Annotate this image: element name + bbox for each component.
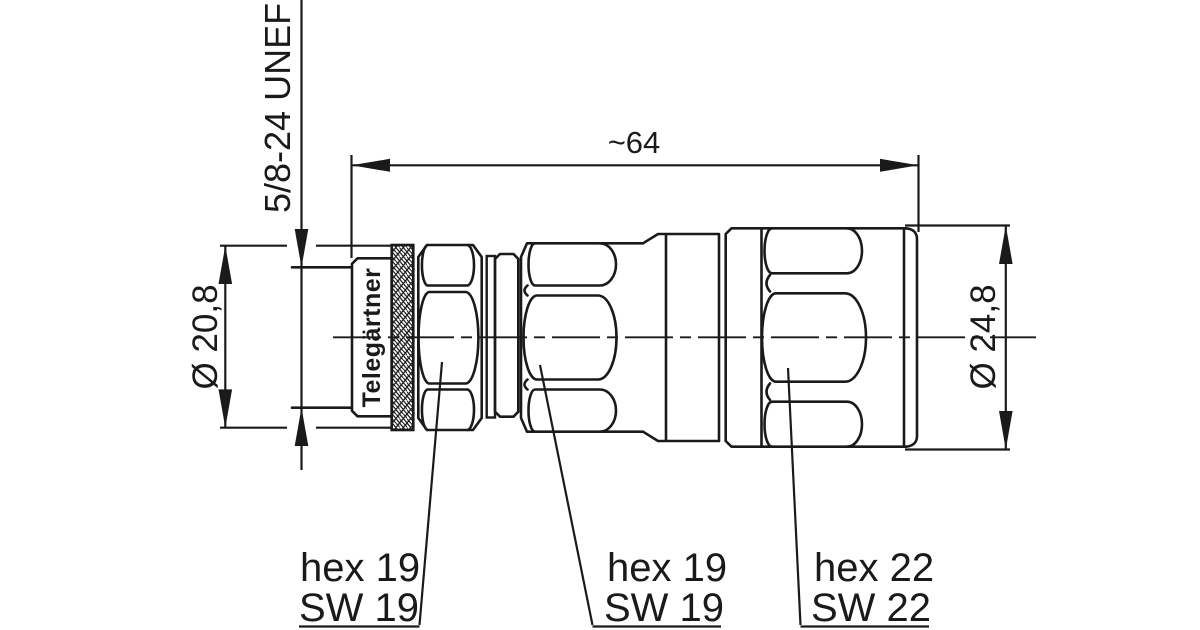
coupling-nut: Telegärtner bbox=[352, 258, 392, 416]
callout-line1: hex 19 bbox=[300, 546, 420, 590]
callout-line2: SW 22 bbox=[811, 586, 931, 630]
callout-line2: SW 19 bbox=[299, 586, 419, 630]
thread-spec-label: 5/8-24 UNEF bbox=[257, 3, 298, 213]
technical-drawing-page: Telegärtner bbox=[0, 0, 1200, 630]
connector-technical-drawing: Telegärtner bbox=[0, 0, 1200, 630]
background bbox=[0, 0, 1200, 630]
brand-label: Telegärtner bbox=[358, 268, 386, 408]
callout-line1: hex 22 bbox=[814, 546, 934, 590]
knurl-ring bbox=[392, 245, 414, 430]
callout-line2: SW 19 bbox=[604, 586, 724, 630]
length-dimension-label: ~64 bbox=[608, 125, 661, 160]
callout-line1: hex 19 bbox=[607, 546, 727, 590]
right-diameter-label: Ø 24,8 bbox=[964, 284, 1003, 389]
left-diameter-label: Ø 20,8 bbox=[186, 284, 225, 389]
